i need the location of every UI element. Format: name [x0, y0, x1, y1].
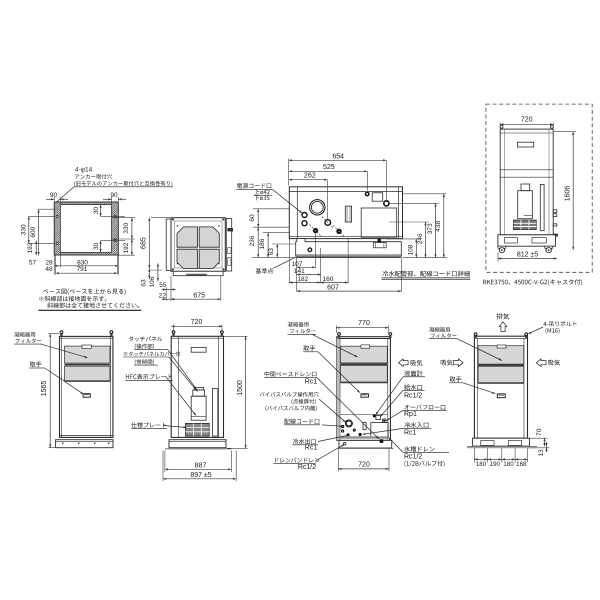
svg-text:180: 180: [476, 461, 487, 468]
svg-text:48: 48: [45, 266, 53, 273]
svg-text:675: 675: [193, 292, 205, 299]
svg-text:438: 438: [435, 220, 442, 231]
svg-text:160: 160: [322, 276, 333, 283]
svg-text:720: 720: [358, 461, 370, 468]
svg-text:654: 654: [332, 153, 344, 160]
svg-text:Rc1/2: Rc1/2: [404, 454, 422, 461]
svg-text:262: 262: [304, 173, 316, 180]
svg-text:108: 108: [408, 244, 415, 255]
svg-text:192: 192: [27, 242, 34, 253]
svg-text:30: 30: [93, 206, 100, 214]
svg-text:186: 186: [259, 238, 266, 249]
svg-text:60: 60: [249, 214, 256, 222]
svg-text:246: 246: [417, 233, 424, 244]
svg-text:107: 107: [292, 261, 303, 268]
svg-text:55: 55: [159, 282, 167, 289]
svg-text:1500: 1500: [237, 380, 244, 396]
svg-text:812 ±5: 812 ±5: [517, 251, 538, 258]
svg-text:190: 190: [490, 461, 501, 468]
svg-text:63: 63: [141, 279, 148, 287]
svg-text:600: 600: [30, 226, 37, 237]
svg-text:770: 770: [358, 320, 370, 327]
svg-text:Rp1: Rp1: [404, 411, 417, 418]
svg-text:Rc1/2: Rc1/2: [298, 464, 316, 471]
svg-text:63: 63: [268, 248, 275, 256]
svg-text:897 ±5: 897 ±5: [190, 472, 211, 479]
svg-text:607: 607: [327, 285, 339, 292]
svg-text:330: 330: [20, 224, 27, 235]
svg-text:330: 330: [123, 223, 130, 234]
svg-text:1565: 1565: [41, 381, 48, 397]
svg-text:Rc1/2: Rc1/2: [404, 392, 422, 399]
svg-text:4-φ14: 4-φ14: [75, 167, 93, 174]
svg-text:141: 141: [294, 268, 305, 275]
svg-text:525: 525: [323, 164, 335, 171]
svg-text:887: 887: [195, 463, 207, 470]
svg-text:180: 180: [503, 461, 514, 468]
svg-text:Rc1: Rc1: [305, 378, 318, 385]
svg-text:57: 57: [29, 259, 37, 266]
svg-text:Rc1: Rc1: [305, 445, 318, 452]
svg-text:182: 182: [297, 276, 308, 283]
svg-text:236: 236: [249, 235, 256, 246]
svg-text:791: 791: [77, 266, 88, 273]
svg-text:Rc1: Rc1: [404, 430, 417, 437]
svg-text:1606: 1606: [564, 186, 571, 202]
svg-text:373: 373: [427, 223, 434, 234]
svg-text:30: 30: [93, 242, 100, 250]
svg-text:90: 90: [50, 192, 58, 199]
svg-text:70: 70: [536, 428, 543, 436]
svg-text:13: 13: [538, 449, 545, 457]
svg-text:106: 106: [149, 276, 156, 287]
svg-text:192: 192: [123, 242, 130, 253]
svg-text:720: 720: [521, 116, 533, 123]
svg-text:168: 168: [516, 461, 527, 468]
svg-text:720: 720: [191, 319, 203, 326]
svg-text:685: 685: [140, 237, 147, 249]
svg-text:22: 22: [159, 292, 167, 299]
